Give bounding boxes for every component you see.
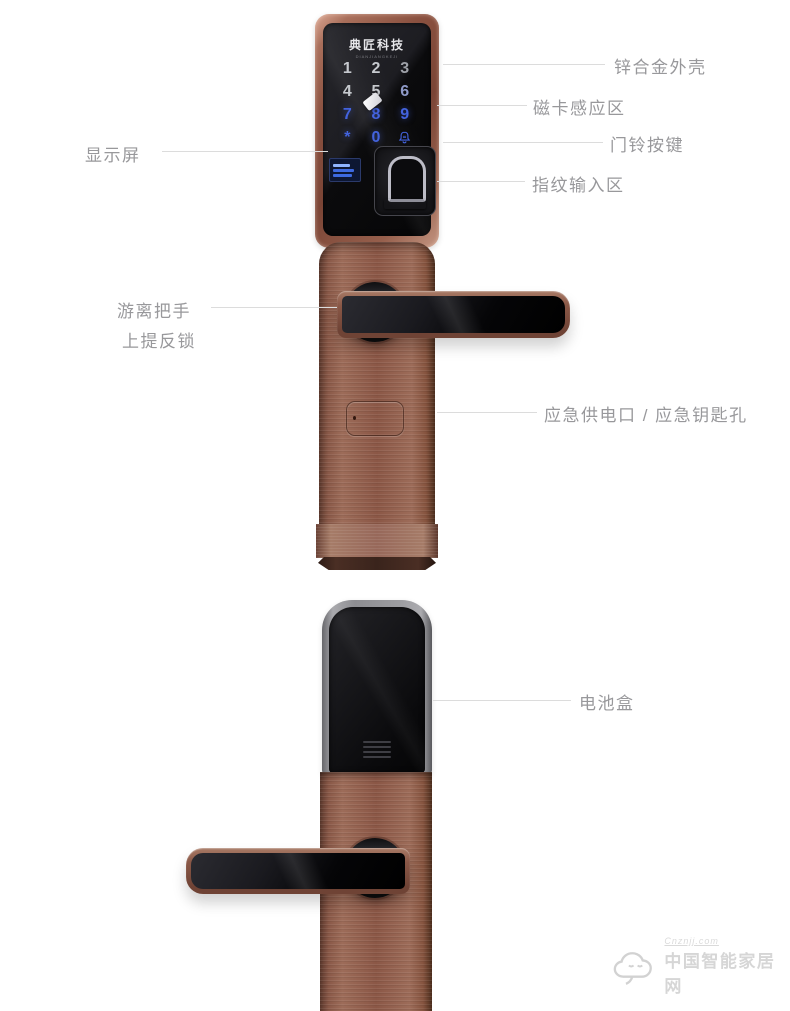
label-doorbell: 门铃按键 [610,131,684,156]
callout-line-handle [211,307,337,308]
callout-line-fingerprint [437,181,525,182]
front-lock-bottom-cap [316,524,438,558]
label-fingerprint: 指纹输入区 [532,171,625,196]
emergency-keyhole [353,416,356,420]
front-lock-bottom-bevel [318,557,436,570]
label-display: 显示屏 [85,141,141,166]
callout-line-zinc-shell [443,64,605,65]
front-handle-grip [342,296,565,333]
brand-logo: 典匠科技 [323,36,431,53]
label-handle-1: 游离把手 [117,297,191,322]
key-3: 3 [390,57,419,80]
fingerprint-sensor-icon [388,156,426,202]
callout-line-card-zone [437,105,527,106]
battery-box-cover [329,607,425,773]
site-watermark: Cnznjj.com 中国智能家居网 [610,936,790,997]
callout-line-doorbell [443,142,603,143]
callout-line-emergency [437,412,537,413]
back-lock-top-frame [322,600,432,776]
callout-line-display [162,151,328,152]
label-emergency: 应急供电口 / 应急钥匙孔 [544,401,748,426]
cloud-logo-icon [610,944,660,990]
label-battery: 电池盒 [579,689,635,714]
label-zinc-shell: 锌合金外壳 [614,53,707,78]
key-*: * [333,126,362,149]
battery-cover-grip-lines [363,738,391,761]
callout-line-battery [433,700,571,701]
key-6: 6 [390,80,419,103]
back-handle-grip [191,853,405,889]
back-handle [186,848,410,894]
fingerprint-sensor-base [384,199,426,209]
fingerprint-module [374,146,436,216]
watermark-url: Cnznjj.com [664,936,790,946]
key-4: 4 [333,80,362,103]
emergency-port-cover [346,401,404,436]
watermark-site-name: 中国智能家居网 [664,947,790,997]
key-1: 1 [333,57,362,80]
label-handle-2: 上提反锁 [122,327,196,352]
key-9: 9 [390,103,419,126]
key-7: 7 [333,103,362,126]
front-handle [337,291,570,338]
product-annotation-scene: 典匠科技 DIANJIANGKEJI 123456789*0 锌合金外壳 磁卡感… [0,0,790,1011]
label-card-zone: 磁卡感应区 [533,94,626,119]
key-2: 2 [362,57,391,80]
display-screen [329,158,361,182]
